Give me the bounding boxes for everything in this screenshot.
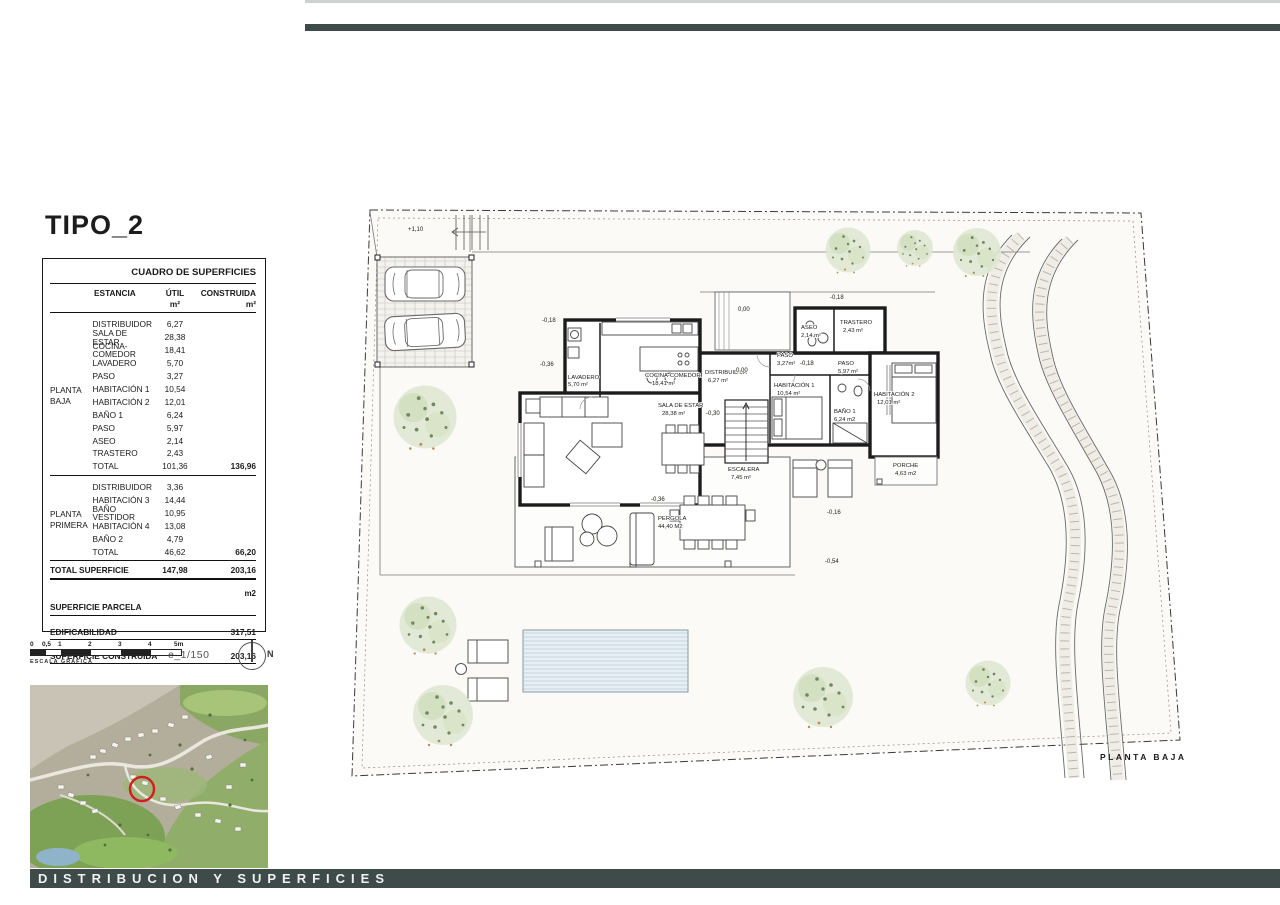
svg-text:HABITACIÓN 1: HABITACIÓN 1 <box>774 382 814 389</box>
entry-platform <box>715 292 790 350</box>
location-map-image <box>30 685 268 868</box>
scale-ticks: 0 0,5 1 2 3 4 5m <box>30 641 185 649</box>
site-plan: LAVADERO 5,70 m² COCINA-COMEDOR 18,41 m²… <box>340 195 1190 787</box>
svg-text:2,43 m²: 2,43 m² <box>843 328 863 334</box>
svg-text:6,27 m²: 6,27 m² <box>708 378 728 384</box>
svg-text:5,70 m²: 5,70 m² <box>568 382 588 388</box>
svg-text:4,63 m2: 4,63 m2 <box>895 471 916 477</box>
group-label: PLANTA BAJA <box>50 318 93 473</box>
svg-text:2,14 m²: 2,14 m² <box>801 333 821 339</box>
table-row: TRASTERO2,43 <box>93 447 256 460</box>
footer-bar: DISTRIBUCION Y SUPERFICIES <box>30 869 1280 888</box>
table-column-headers: ESTANCIA ÚTIL CONSTRUIDA <box>50 284 256 297</box>
col-estancia: ESTANCIA <box>94 289 152 297</box>
plan-sheet: TIPO_2 CUADRO DE SUPERFICIES ESTANCIA ÚT… <box>0 0 1280 905</box>
svg-text:ESCALERA: ESCALERA <box>728 467 760 473</box>
svg-text:SALA DE ESTAR: SALA DE ESTAR <box>658 403 703 409</box>
svg-text:5,97 m²: 5,97 m² <box>838 369 858 375</box>
table-row: LAVADERO5,70 <box>93 357 256 370</box>
table-row: ASEO2,14 <box>93 434 256 447</box>
svg-text:HABITACIÓN 2: HABITACIÓN 2 <box>874 391 914 398</box>
table-row: BAÑO 24,79 <box>93 532 256 545</box>
compass-needle <box>251 640 253 662</box>
svg-text:LAVADERO: LAVADERO <box>568 375 600 381</box>
col-construida: CONSTRUIDA <box>198 289 256 297</box>
svg-text:0,00: 0,00 <box>736 368 748 374</box>
group-label: PLANTA PRIMERA <box>50 481 93 558</box>
svg-text:-0,54: -0,54 <box>825 559 839 565</box>
m2-unit-label: m2 <box>50 580 256 600</box>
svg-text:7,45 m²: 7,45 m² <box>731 475 751 481</box>
group-planta-baja: PLANTA BAJA DISTRIBUIDOR6,27 SALA DE EST… <box>50 313 256 473</box>
svg-text:3,27m²: 3,27m² <box>777 361 795 367</box>
group-planta-primera: PLANTA PRIMERA DISTRIBUIDOR3,36 HABITACI… <box>50 476 256 558</box>
site-plan-drawing: LAVADERO 5,70 m² COCINA-COMEDOR 18,41 m²… <box>340 195 1190 787</box>
surfaces-table: CUADRO DE SUPERFICIES ESTANCIA ÚTIL CONS… <box>42 258 266 632</box>
table-row: BAÑO 16,24 <box>93 408 256 421</box>
svg-text:12,01 m²: 12,01 m² <box>877 400 900 406</box>
table-row: DISTRIBUIDOR3,36 <box>93 481 256 494</box>
superficie-parcela-row: SUPERFICIE PARCELA <box>50 600 256 615</box>
svg-text:0,00: 0,00 <box>738 307 750 313</box>
table-header: CUADRO DE SUPERFICIES <box>50 264 256 284</box>
plan-caption: PLANTA BAJA <box>1100 752 1187 762</box>
table-row-total: TOTAL46,6266,20 <box>93 545 256 558</box>
page-title: TIPO_2 <box>45 210 144 241</box>
car-icon <box>384 313 466 351</box>
carport <box>375 255 474 367</box>
table-row: HABITACIÓN 413,08 <box>93 520 256 533</box>
svg-text:PASO: PASO <box>838 361 854 367</box>
svg-text:-0,18: -0,18 <box>542 318 556 324</box>
svg-text:-0,18: -0,18 <box>800 361 814 367</box>
svg-text:TRASTERO: TRASTERO <box>840 320 872 326</box>
svg-text:-0,16: -0,16 <box>827 510 841 516</box>
svg-text:PASO: PASO <box>777 353 793 359</box>
car-icon <box>385 267 465 301</box>
table-row: PASO5,97 <box>93 421 256 434</box>
table-row: PASO3,27 <box>93 370 256 383</box>
svg-text:COCINA-COMEDOR: COCINA-COMEDOR <box>645 373 701 379</box>
table-row: COCINA-COMEDOR18,41 <box>93 344 256 357</box>
table-divider <box>50 560 256 561</box>
footer-title: DISTRIBUCION Y SUPERFICIES <box>30 871 390 886</box>
table-row: BAÑO VESTIDOR10,95 <box>93 507 256 520</box>
scale-bar: 0 0,5 1 2 3 4 5m ESCALA GRAFICA <box>30 641 185 665</box>
table-row-total: TOTAL101,36136,96 <box>93 460 256 473</box>
col-util: ÚTIL <box>152 289 198 297</box>
svg-text:10,54 m²: 10,54 m² <box>777 391 800 397</box>
scale-row: 0 0,5 1 2 3 4 5m ESCALA GRAFICA e_1/150 … <box>30 641 268 679</box>
scale-ratio: e_1/150 <box>168 649 209 661</box>
svg-text:ASEO: ASEO <box>801 325 818 331</box>
svg-text:+1,10: +1,10 <box>408 227 424 233</box>
svg-text:18,41 m²: 18,41 m² <box>652 381 675 387</box>
svg-text:44,40 M2: 44,40 M2 <box>658 524 683 530</box>
svg-text:28,38 m²: 28,38 m² <box>662 411 685 417</box>
edificabilidad-row: EDIFICABILIDAD317,51 <box>50 625 256 640</box>
scale-caption: ESCALA GRAFICA <box>30 659 185 665</box>
svg-text:-0,36: -0,36 <box>651 497 665 503</box>
svg-text:BAÑO 1: BAÑO 1 <box>834 408 856 415</box>
staircase <box>725 400 768 463</box>
location-map <box>30 685 268 868</box>
svg-text:PERGOLA: PERGOLA <box>658 516 687 522</box>
svg-text:-0,36: -0,36 <box>540 362 554 368</box>
table-units-row: m² m² <box>50 297 256 313</box>
svg-text:PORCHE: PORCHE <box>893 463 918 469</box>
north-compass-icon: N <box>238 642 266 670</box>
table-row: HABITACIÓN 110,54 <box>93 383 256 396</box>
table-row: HABITACIÓN 212,01 <box>93 396 256 409</box>
top-divider-bar <box>305 24 1280 31</box>
north-label: N <box>267 649 274 659</box>
scale-bar-segments <box>30 649 182 656</box>
svg-text:6,24 m2: 6,24 m2 <box>834 417 855 423</box>
pool <box>523 630 688 692</box>
top-edge-line <box>305 0 1280 3</box>
svg-text:-0,18: -0,18 <box>830 295 844 301</box>
svg-text:-0,30: -0,30 <box>706 411 720 417</box>
total-superficie-row: TOTAL SUPERFICIE 147,98 203,16 <box>50 562 256 580</box>
